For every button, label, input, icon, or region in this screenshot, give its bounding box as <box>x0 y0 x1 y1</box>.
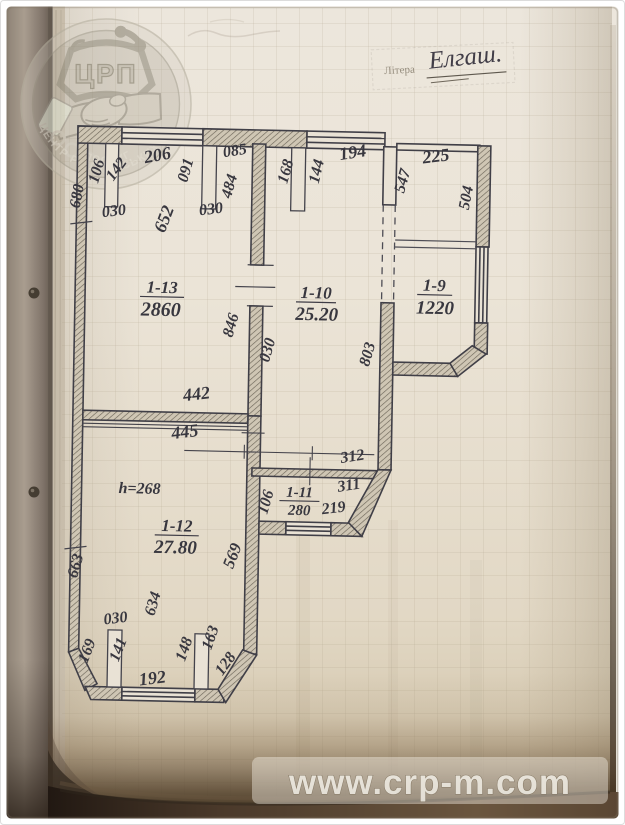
svg-text:h=268: h=268 <box>118 480 160 498</box>
svg-text:280: 280 <box>287 503 311 520</box>
svg-text:311: 311 <box>335 476 361 496</box>
svg-text:225: 225 <box>420 144 450 167</box>
svg-text:085: 085 <box>222 141 248 161</box>
svg-text:194: 194 <box>338 140 368 164</box>
svg-text:Літера: Літера <box>384 64 415 78</box>
svg-text:1220: 1220 <box>416 298 455 320</box>
svg-text:www.crp-m.com: www.crp-m.com <box>288 763 571 802</box>
svg-text:1-9: 1-9 <box>423 276 446 296</box>
svg-text:219: 219 <box>320 498 347 518</box>
svg-text:1-12: 1-12 <box>161 516 193 536</box>
svg-text:ЦРП: ЦРП <box>74 59 137 89</box>
svg-text:442: 442 <box>181 382 211 405</box>
svg-text:192: 192 <box>138 666 167 689</box>
svg-text:030: 030 <box>101 202 127 222</box>
svg-text:030: 030 <box>103 609 129 629</box>
svg-text:1-10: 1-10 <box>300 283 332 303</box>
svg-text:030: 030 <box>198 200 224 220</box>
svg-text:1-13: 1-13 <box>146 278 178 298</box>
svg-text:445: 445 <box>169 420 199 443</box>
svg-text:27.80: 27.80 <box>153 537 198 559</box>
svg-text:1-11: 1-11 <box>286 485 313 502</box>
svg-text:2860: 2860 <box>140 298 181 321</box>
svg-text:25.20: 25.20 <box>294 304 339 326</box>
